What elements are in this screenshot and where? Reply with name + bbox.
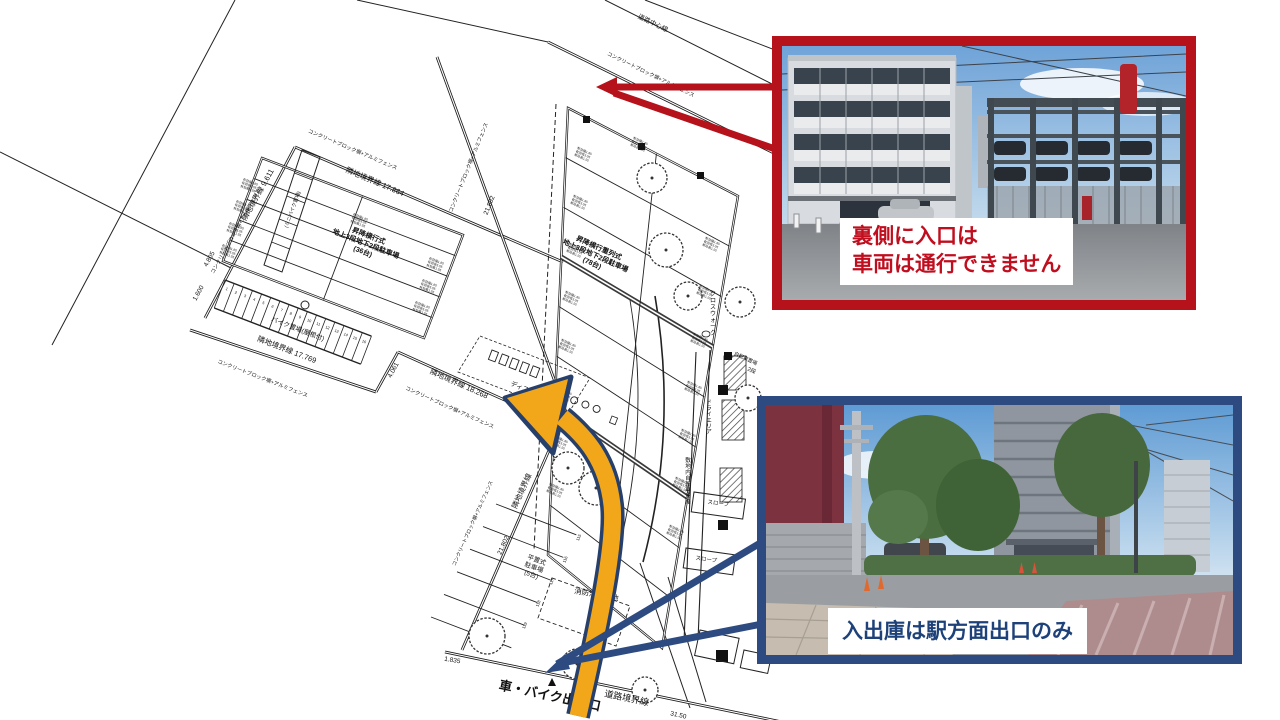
plan-label: 1.835 [444,656,462,666]
plan-label: 31.50 [670,710,688,720]
stall-spec-micro-label: 有効幅1.85有効長5.05有効高1.55 [426,255,445,272]
bike-stall-number: 1 [225,287,228,291]
bike-stall-number: 5 [262,301,265,305]
plan-label: (ミニバイク置場) [283,190,303,229]
stall-spec-micro-label: 有効幅1.85有効長5.05有効高1.55 [557,337,577,355]
stall-spec-micro-label: 有効幅1.85有効長5.05有効高1.55 [689,331,709,349]
bike-stall-number: 8 [289,312,292,316]
front-caption: 入出庫は駅方面出口のみ [828,608,1087,654]
plan-label: コンクリートブロック塀+アルミフェンス [446,121,489,213]
plan-label: 4.061 [387,361,401,379]
rear-callout-lines [596,77,778,150]
plan-label: クロスウォーク [710,291,716,337]
flat-stall-number: 119 [521,621,528,630]
bike-stall-number: 6 [271,305,274,309]
flat-stall-number: 118 [535,599,542,608]
rear-caption-line1: 裏側に入口は [852,223,1061,251]
bike-stall-number: 2 [234,290,237,294]
stall-spec-micro-label: 有効幅1.85有効長5.05有効高1.55 [350,211,369,228]
stall-spec-micro-label: 有効幅1.85有効長5.05有効高1.55 [412,299,431,316]
plan-label: 2段 [746,365,758,376]
plan-label: 隣地境界線 18.268 [429,366,490,401]
plan-label: コンクリートブロック塀+アルミフェンス [451,480,495,568]
slide: 12345678910111213141516115116117118119有効… [0,0,1280,720]
red-device [1082,196,1092,220]
flat-stall-number: 116 [562,555,569,564]
rear-caption-line2: 車両は通行できません [852,251,1061,279]
stall-spec-micro-label: 有効幅1.85有効長5.05有効高1.55 [561,289,581,307]
plan-label: 道路中心線 [637,12,671,35]
photo-rear-entrance: 裏側に入口は 車両は通行できません [772,36,1196,310]
entrance-canopy [1006,539,1102,545]
bike-stall-number: 4 [252,298,255,302]
plan-label: ドライエリア [706,400,712,436]
stall-spec-micro-label: 有効幅1.85有効長5.05有効高1.55 [545,481,565,499]
bike-stall-number: 12 [325,325,330,330]
plan-label: コンクリートブロック塀+アルミフェンス [307,127,399,172]
plan-label: 敷地内自転車通路 [685,456,691,506]
rear-callout-arrowhead [596,77,617,97]
plan-label: 昇降横行重列式地上3段地下2段駐車場(78台) [558,229,633,281]
bike-stall-number: 9 [298,315,301,319]
bike-stall-number: 13 [334,329,339,334]
photo-front-exit: 入出庫は駅方面出口のみ [757,396,1242,664]
flat-stall-number: 115 [575,533,582,542]
bike-stall-number: 14 [343,332,348,337]
plan-linework: 12345678910111213141516115116117118119有効… [0,0,788,720]
bike-stall-number: 10 [306,318,311,323]
stall-spec-micro-label: 有効幅1.85有効長5.05有効高1.55 [419,277,438,294]
plan-label: バイク置場(屋根付) [270,314,326,343]
stall-spec-micro-label: 有効幅1.85有効長5.05有効高1.55 [629,135,649,153]
stall-spec-micro-label: 有効幅1.85有効長5.05有効高1.55 [573,145,593,163]
bike-stall-number: 7 [280,308,283,312]
front-caption-text: 入出庫は駅方面出口のみ [842,620,1073,643]
plan-label: 昇降横行式地上3段地下2段駐車場(36台) [328,219,403,268]
bike-stall-number: 3 [243,294,246,298]
stall-spec-micro-label: 有効幅1.85有効長5.05有効高1.55 [677,427,697,445]
rear-caption: 裏側に入口は 車両は通行できません [840,218,1073,285]
lamp-post [1134,461,1138,573]
plan-label: コンクリートブロック塀+アルミフェンス [216,357,309,399]
plan-label: 1.600 [192,284,206,302]
bike-stall-number: 16 [361,339,366,344]
bike-stall-number: 11 [316,322,321,327]
stall-spec-micro-label: 有効幅1.85有効長5.05有効高1.55 [701,235,721,253]
red-pole [1120,64,1137,114]
front-callout-lines [545,542,762,673]
stall-spec-micro-label: 有効幅1.85有効長5.05有効高1.55 [569,193,589,211]
plan-label: 隣地境界線 17.769 [256,333,318,365]
hedge [864,555,1196,577]
apartment-building [788,55,972,224]
plan-label: スロープ [695,555,718,565]
bike-stall-number: 15 [352,336,357,341]
